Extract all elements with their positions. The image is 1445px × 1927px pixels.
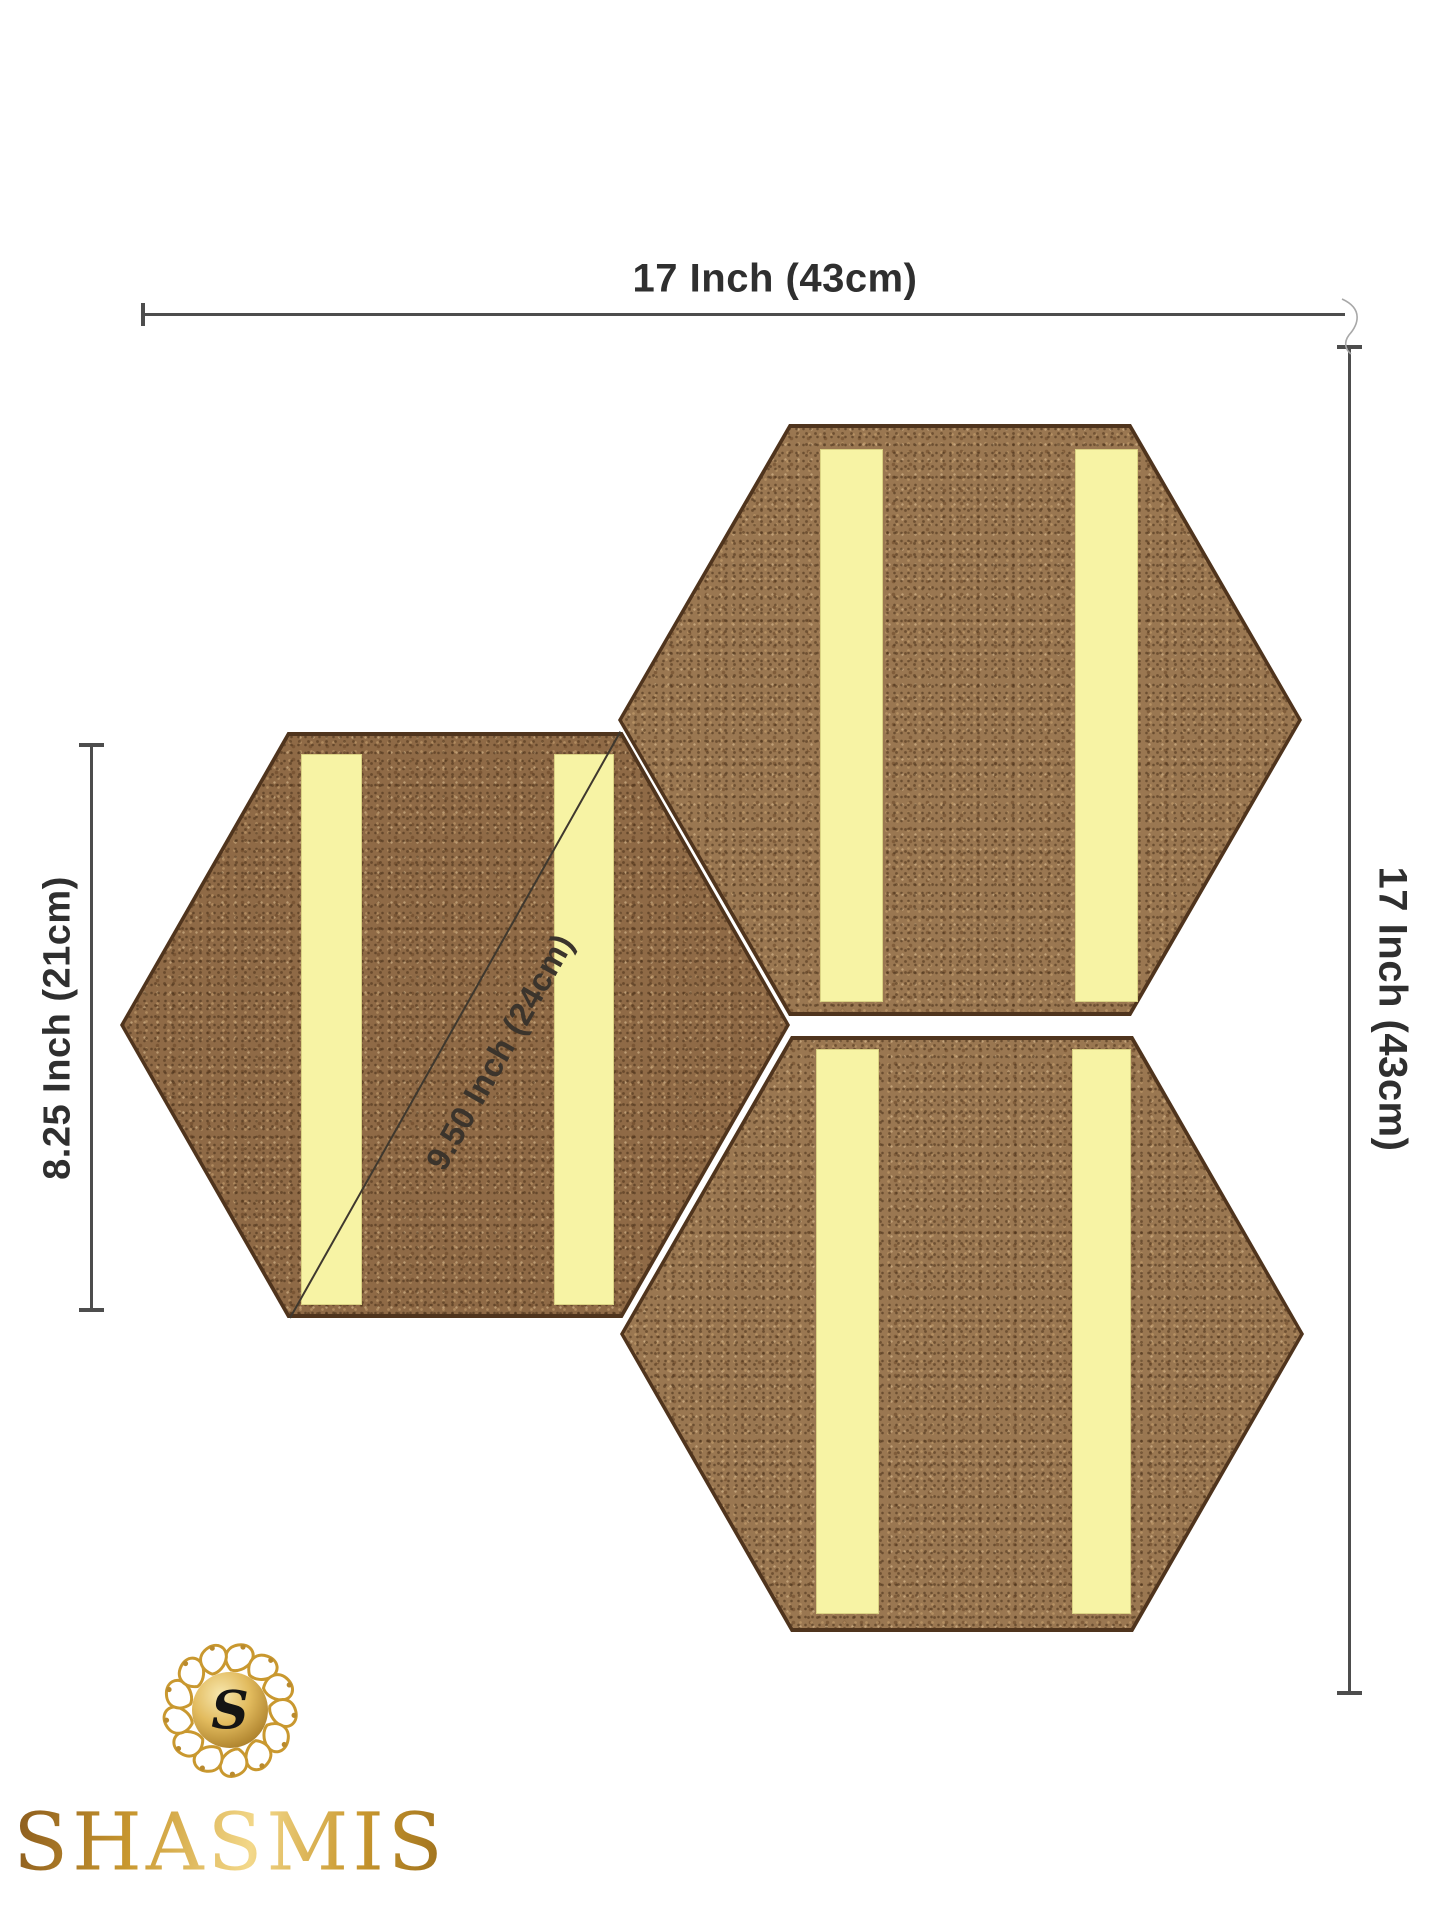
adhesive-strip (554, 754, 614, 1305)
corner-connector-curve (1318, 293, 1378, 363)
left-dimension-line (90, 745, 93, 1310)
right-dimension-line (1348, 347, 1351, 1693)
top-dimension-line (143, 313, 1345, 316)
adhesive-strip (301, 754, 362, 1305)
adhesive-strip (1072, 1049, 1131, 1614)
top-width-label: 17 Inch (43cm) (633, 257, 918, 302)
adhesive-strip (816, 1049, 879, 1614)
product-dimension-diagram: 17 Inch (43cm) 17 Inch (43cm) 8.25 Inch … (0, 0, 1445, 1927)
left-height-label: 8.25 Inch (21cm) (37, 876, 80, 1180)
brand-logo: S SHASMIS (0, 1630, 470, 1920)
adhesive-strip (820, 449, 883, 1002)
brand-monogram: S (211, 1681, 249, 1742)
right-height-label: 17 Inch (43cm) (1370, 867, 1415, 1152)
brand-wordmark: SHASMIS (13, 1796, 446, 1889)
brand-emblem-icon: S (160, 1640, 300, 1780)
adhesive-strip (1075, 449, 1138, 1002)
